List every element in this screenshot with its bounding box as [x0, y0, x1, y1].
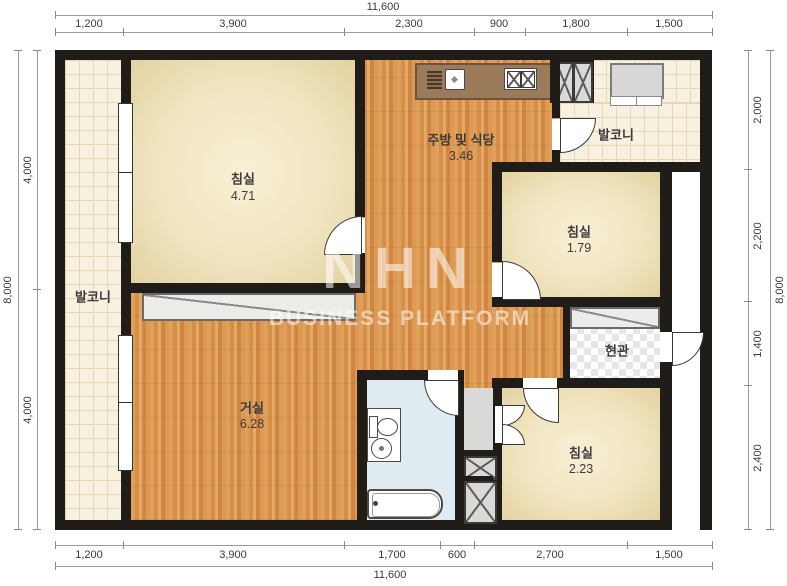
- window-icon: [118, 402, 133, 471]
- dim-label: 1,200: [75, 549, 103, 561]
- dim-label: 1,700: [378, 549, 406, 561]
- dim-label: 3,900: [219, 18, 247, 30]
- dim-tick: [55, 541, 56, 549]
- wall: [55, 50, 65, 530]
- dim-label-left-total: 8,000: [2, 276, 14, 304]
- dim-label: 4,000: [22, 156, 34, 184]
- wall: [660, 362, 672, 520]
- dim-tick: [744, 169, 752, 170]
- window-icon: [118, 172, 133, 243]
- window-icon: [118, 103, 133, 173]
- room-label: 침실: [567, 222, 591, 241]
- stove-burner-icon: [521, 71, 535, 88]
- dim-tick: [55, 11, 56, 19]
- shaft-x-panel-icon: [464, 481, 497, 524]
- washbasin-drain-icon: [379, 446, 384, 451]
- dim-tick: [744, 301, 752, 302]
- wall: [660, 172, 672, 332]
- dim-label: 1,500: [655, 549, 683, 561]
- wall: [355, 60, 365, 217]
- dim-label-bottom-total: 11,600: [374, 569, 407, 581]
- watermark-subtitle: BUSINESS PLATFORM: [240, 308, 560, 329]
- dim-label: 2,700: [536, 549, 564, 561]
- bathtub-faucet-icon: [373, 501, 378, 506]
- room-area: 2.23: [569, 462, 593, 476]
- room-label: 주방 및 식당: [427, 130, 494, 149]
- dim-tick: [33, 50, 41, 51]
- washer-icon: [610, 63, 664, 99]
- dim-tick: [55, 28, 56, 36]
- dim-tick: [712, 11, 713, 19]
- dimension-line: [770, 50, 771, 530]
- dimension-line: [55, 15, 712, 16]
- wall: [55, 50, 712, 60]
- shoe-closet-icon: [570, 307, 660, 329]
- toilet-bowl-icon: [377, 418, 398, 436]
- room-area: 4.71: [231, 189, 255, 203]
- dim-tick: [123, 541, 124, 549]
- dim-tick: [744, 529, 752, 530]
- dimension-line: [18, 50, 19, 530]
- dim-tick: [627, 541, 628, 549]
- dim-label-top-total: 11,600: [367, 1, 400, 13]
- dim-tick: [33, 289, 41, 290]
- dim-label: 1,400: [752, 330, 764, 358]
- room-area: 3.46: [449, 149, 473, 163]
- wall: [700, 50, 712, 530]
- door-jamb: [552, 119, 560, 150]
- dim-tick: [14, 529, 22, 530]
- dim-label: 2,300: [395, 18, 423, 30]
- dimension-line: [748, 50, 749, 530]
- floor-plan: NHN BUSINESS PLATFORM 침실 4.71 주방 및 식당 3.…: [0, 0, 787, 586]
- room-label: 발코니: [75, 287, 111, 306]
- room-label: 발코니: [598, 125, 634, 144]
- room-label: 침실: [569, 443, 593, 462]
- dim-label: 2,200: [752, 222, 764, 250]
- dim-tick: [744, 385, 752, 386]
- wall: [55, 520, 672, 530]
- wall: [557, 378, 672, 388]
- room-label: 침실: [231, 169, 255, 188]
- door-jamb: [523, 378, 557, 388]
- dim-label: 2,400: [752, 444, 764, 472]
- dim-label: 4,000: [22, 396, 34, 424]
- dim-tick: [712, 562, 713, 570]
- window-icon: [118, 335, 133, 403]
- door-jamb: [495, 406, 502, 443]
- duct-panel-icon: [573, 62, 593, 103]
- wall: [552, 60, 560, 118]
- dim-tick: [33, 529, 41, 530]
- dim-tick: [440, 541, 441, 549]
- dim-label: 1,200: [75, 18, 103, 30]
- wall: [357, 370, 367, 520]
- dim-label: 600: [448, 549, 466, 561]
- dim-tick: [712, 28, 713, 36]
- dim-tick: [627, 28, 628, 36]
- watermark-logo: NHN: [240, 240, 560, 298]
- door-jamb: [660, 332, 672, 362]
- room-label: 거실: [240, 398, 264, 417]
- dim-tick: [766, 50, 774, 51]
- dim-label: 1,800: [562, 18, 590, 30]
- dish-rack-icon: [427, 71, 442, 89]
- dim-tick: [344, 28, 345, 36]
- dimension-line: [55, 566, 712, 567]
- wall: [357, 370, 428, 380]
- dim-label: 2,000: [752, 96, 764, 124]
- balcony-shelf-icon: [636, 96, 662, 106]
- dimension-line: [55, 32, 712, 33]
- dim-label: 1,500: [655, 18, 683, 30]
- dim-label-right-total: 8,000: [774, 276, 786, 304]
- door-jamb: [428, 370, 458, 380]
- watermark: NHN BUSINESS PLATFORM: [240, 240, 560, 329]
- dim-tick: [344, 541, 345, 549]
- dim-tick: [14, 50, 22, 51]
- dim-tick: [474, 28, 475, 36]
- room-area: 6.28: [240, 417, 264, 431]
- room-area: 1.79: [567, 241, 591, 255]
- bathtub-inner-icon: [372, 493, 440, 517]
- dim-tick: [744, 50, 752, 51]
- shaft-panel: [464, 388, 493, 450]
- dim-label: 3,900: [219, 549, 247, 561]
- dim-tick: [525, 28, 526, 36]
- dim-tick: [123, 28, 124, 36]
- dim-tick: [474, 541, 475, 549]
- dim-tick: [712, 541, 713, 549]
- wall: [552, 162, 712, 172]
- stove-burner-icon: [507, 71, 521, 88]
- dim-label: 900: [490, 18, 508, 30]
- dimension-line: [37, 50, 38, 530]
- dim-tick: [766, 529, 774, 530]
- balcony-shelf-icon: [610, 96, 637, 106]
- wall: [563, 307, 570, 383]
- dim-tick: [55, 562, 56, 570]
- wall: [492, 162, 560, 172]
- room-label: 현관: [605, 341, 629, 360]
- dimension-line: [55, 545, 712, 546]
